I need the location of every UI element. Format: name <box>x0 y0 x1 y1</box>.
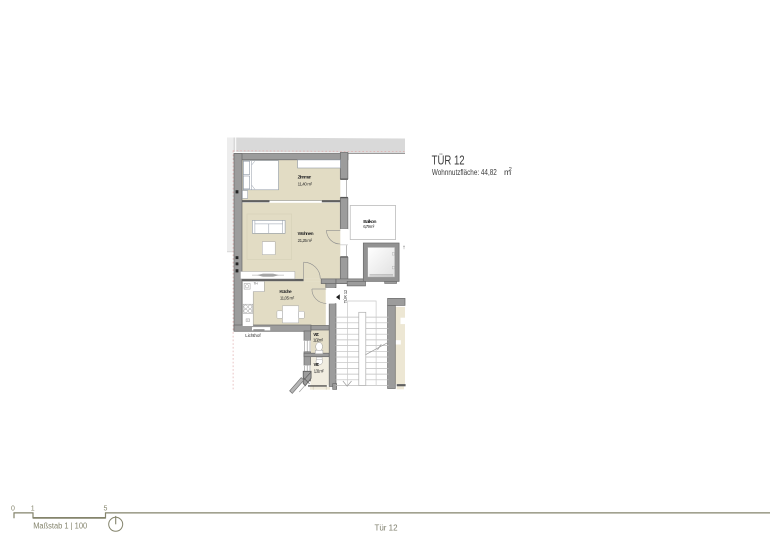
svg-text:6,79 m²: 6,79 m² <box>363 224 375 229</box>
svg-text:Lichthof: Lichthof <box>245 333 261 338</box>
svg-text:Maßstab 1 | 100: Maßstab 1 | 100 <box>33 522 88 531</box>
svg-text:WC: WC <box>314 362 320 368</box>
svg-text:5: 5 <box>104 505 108 512</box>
svg-text:Wohnen: Wohnen <box>298 231 314 237</box>
svg-text:1,31 m²: 1,31 m² <box>314 369 325 374</box>
svg-text:Zimmer: Zimmer <box>298 174 312 180</box>
svg-text:Küche: Küche <box>279 289 292 295</box>
svg-text:TÜR 12: TÜR 12 <box>343 289 348 303</box>
svg-text:21,25 m²: 21,25 m² <box>298 238 313 243</box>
svg-text:TH: TH <box>254 282 258 286</box>
svg-text:1: 1 <box>31 505 35 512</box>
svg-text:11,05 m²: 11,05 m² <box>280 296 295 301</box>
svg-text:1,02 m²: 1,02 m² <box>313 338 324 343</box>
svg-text:2: 2 <box>509 167 512 173</box>
svg-text:0: 0 <box>11 505 15 512</box>
svg-text:11,40 m²: 11,40 m² <box>298 181 313 186</box>
svg-text:Tür 12: Tür 12 <box>374 523 398 532</box>
svg-text:TÜR 12: TÜR 12 <box>432 152 465 167</box>
svg-text:Wohnnutzfläche: 44,82: Wohnnutzfläche: 44,82 <box>432 167 497 177</box>
